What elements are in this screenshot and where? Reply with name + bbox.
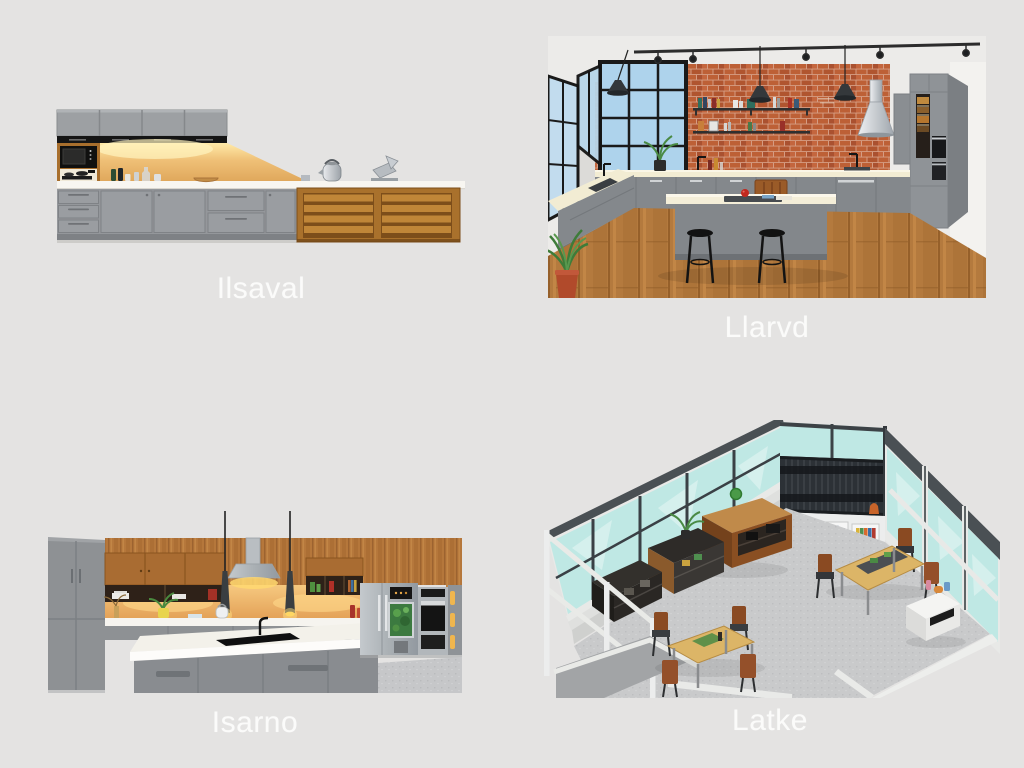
left-upper-cabinets <box>105 553 225 602</box>
panel-2-caption: Llarvd <box>548 311 986 344</box>
render-panel-2[interactable]: Llarvd <box>548 36 986 344</box>
appliance-wall <box>360 583 462 658</box>
tall-cabinet <box>910 74 968 228</box>
kitchen-elevation-art <box>55 106 467 246</box>
loft-kitchen-art <box>548 36 986 298</box>
isometric-room-art <box>540 420 1000 698</box>
floor <box>378 657 462 693</box>
wood-sideboard <box>297 188 460 242</box>
microwave-niche <box>57 143 100 181</box>
wall-cabinet <box>894 94 910 164</box>
panel-1-caption: Ilsaval <box>55 272 467 305</box>
render-panel-3[interactable]: Isarno <box>48 511 462 739</box>
render-panel-1[interactable]: Ilsaval <box>55 106 467 305</box>
base-cabinets <box>57 189 297 243</box>
modern-kitchen-art <box>48 511 462 695</box>
panel-3-caption: Isarno <box>48 706 462 739</box>
render-panel-4[interactable]: Latke <box>540 420 1000 737</box>
main-window <box>578 62 686 174</box>
gallery-canvas: Ilsaval <box>0 0 1024 768</box>
panel-4-caption: Latke <box>540 704 1000 737</box>
tall-fridge-cabinet <box>48 537 105 693</box>
kettle <box>318 160 341 181</box>
grinder <box>371 156 398 181</box>
upper-cabinets <box>57 110 227 143</box>
right-upper-cabinets <box>306 558 363 595</box>
